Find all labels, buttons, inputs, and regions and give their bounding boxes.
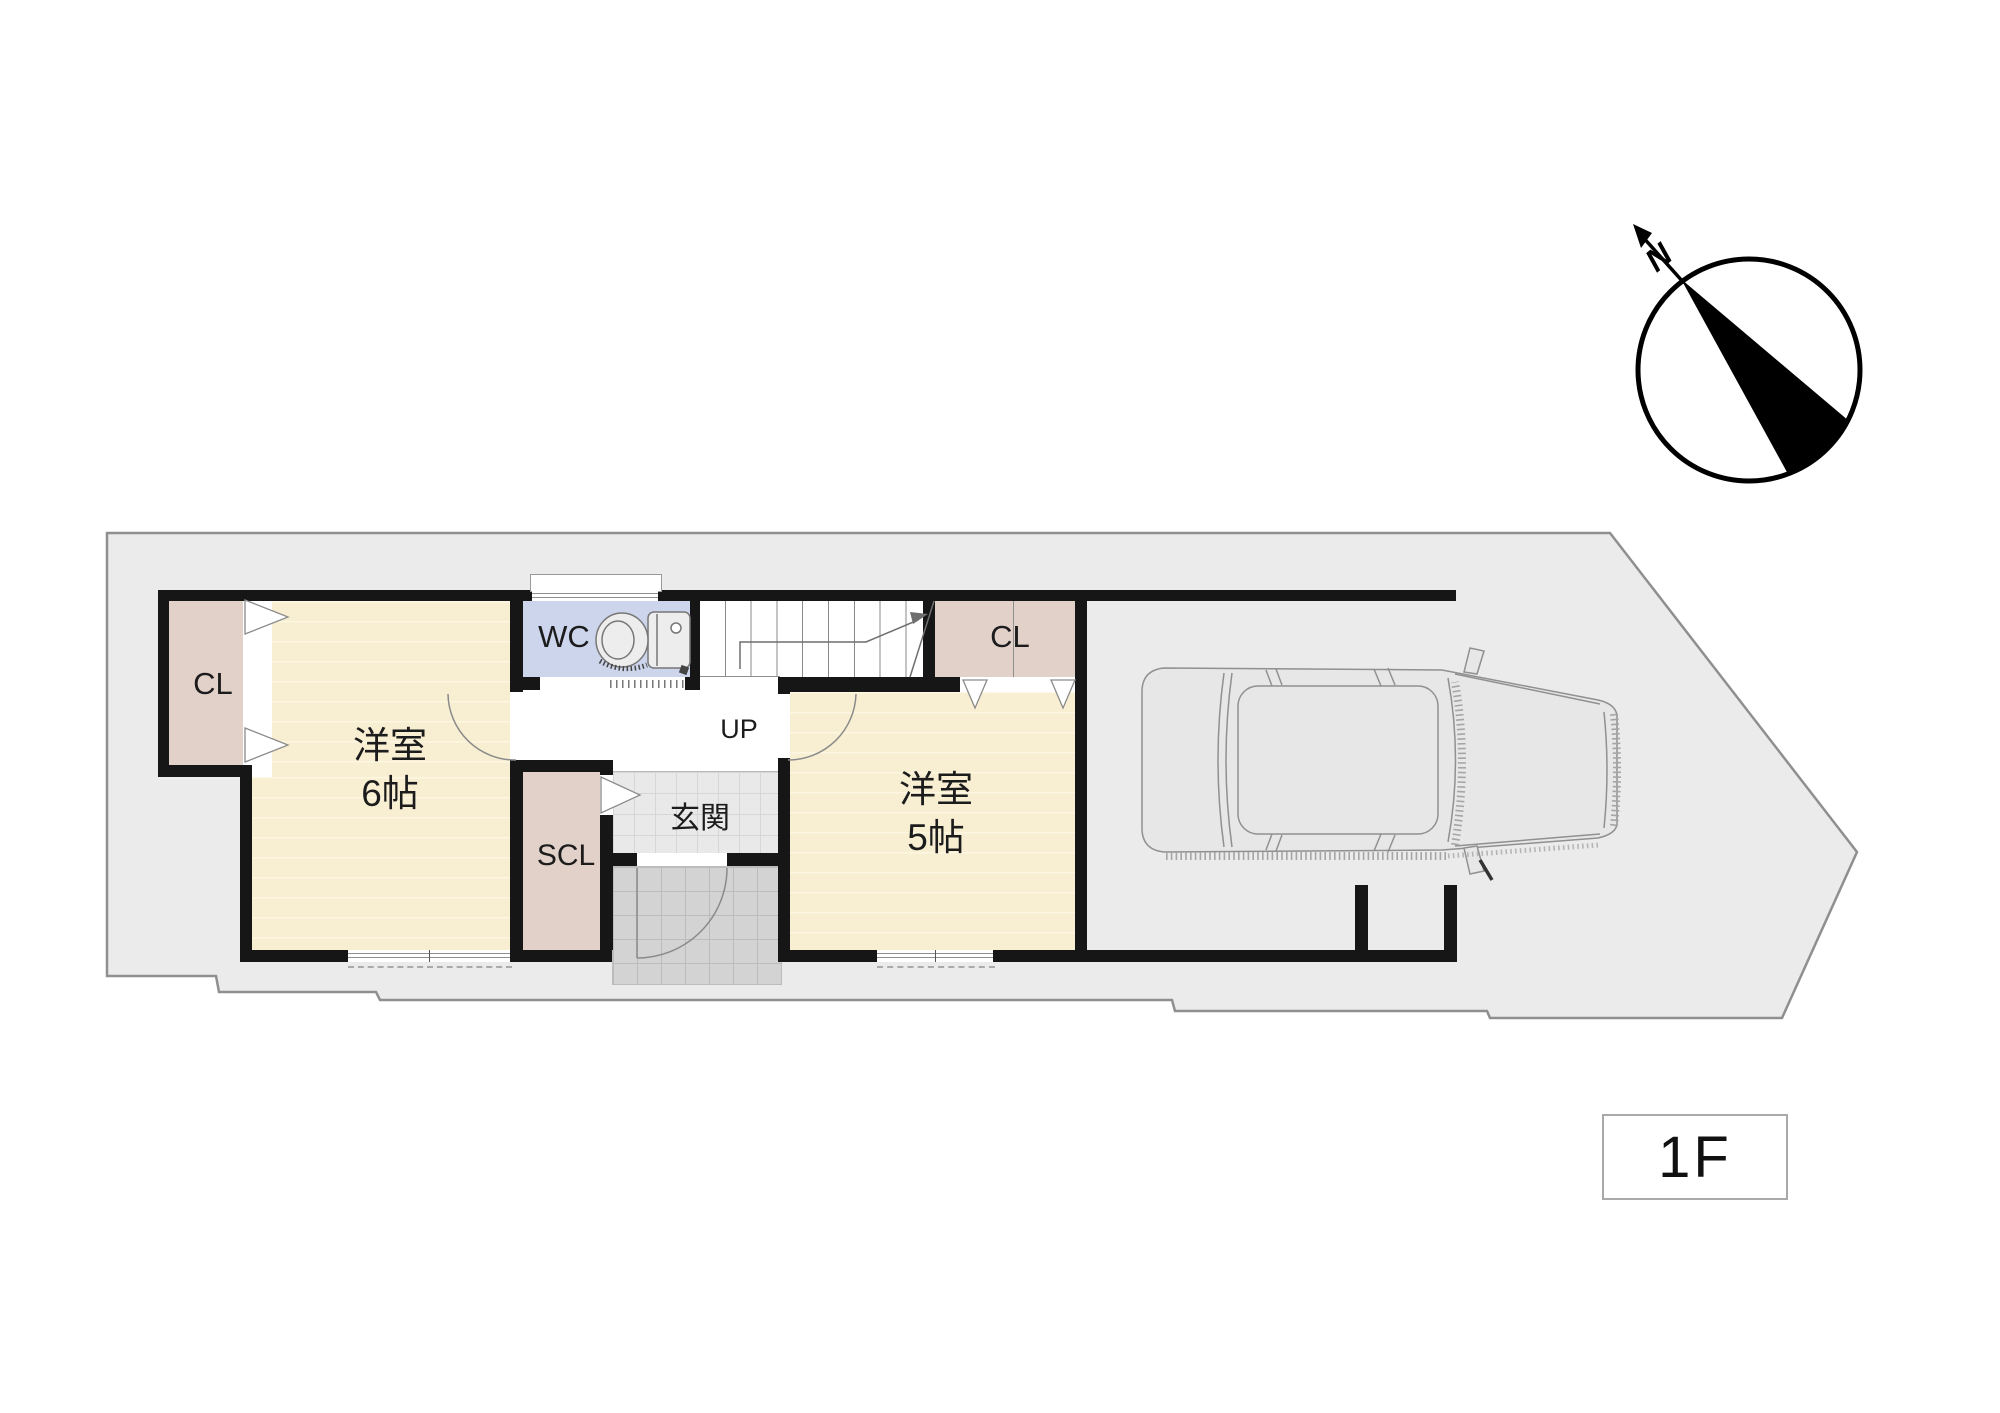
label-entrance: 玄関 — [640, 795, 760, 835]
room-size: 6帖 — [361, 770, 419, 818]
lineart-layer: N — [0, 0, 2000, 1413]
car-icon — [1142, 648, 1617, 880]
label-western-room-5: 洋室 5帖 — [836, 764, 1036, 864]
label-up: UP — [699, 710, 779, 748]
floor-badge: 1F — [1602, 1114, 1788, 1200]
label-shoe-closet: SCL — [516, 836, 616, 876]
label-closet-left: CL — [168, 662, 258, 706]
door-arc-room5 — [788, 694, 856, 760]
closet-door-icon — [963, 680, 1075, 708]
label-wc: WC — [514, 617, 614, 657]
room-size: 5帖 — [907, 814, 965, 862]
room-name: 洋室 — [353, 722, 427, 770]
floor-plan-page: N CL 洋室 6帖 WC UP CL 洋室 5帖 SCL 玄関 1F — [0, 0, 2000, 1413]
stairs-direction-arrow — [740, 601, 934, 677]
label-western-room-6: 洋室 6帖 — [290, 720, 490, 820]
entry-door — [637, 868, 727, 958]
folding-door-icon — [601, 777, 640, 813]
compass-icon: N — [1633, 224, 1860, 481]
room-name: 洋室 — [899, 766, 973, 814]
label-closet-right: CL — [960, 616, 1060, 658]
stairs-arrowhead — [910, 612, 928, 624]
